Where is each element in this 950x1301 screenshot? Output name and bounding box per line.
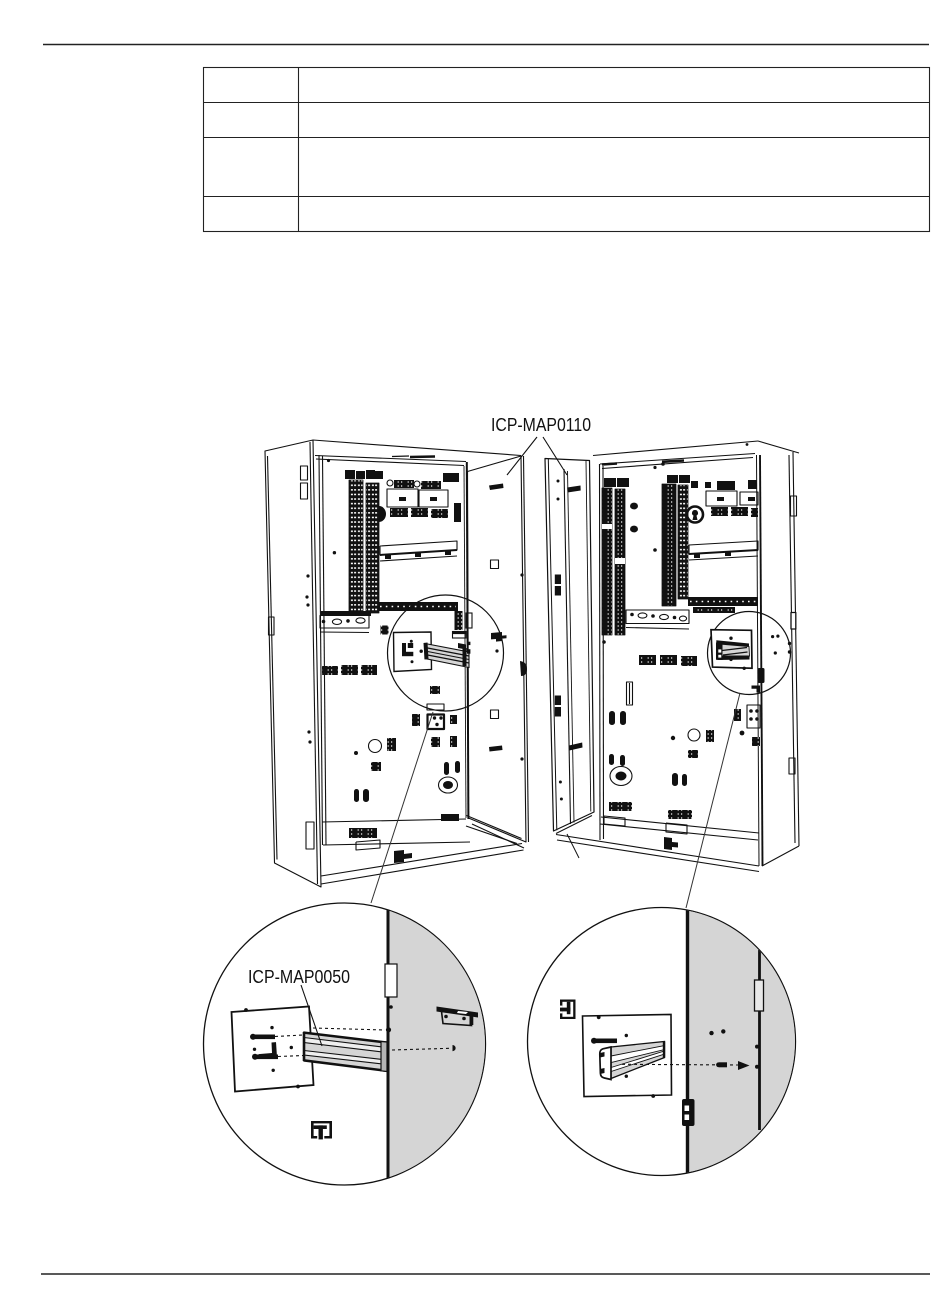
svg-text:ICP-MAP0110: ICP-MAP0110 [491,414,591,435]
svg-text:ICP-MAP0050: ICP-MAP0050 [248,966,350,987]
